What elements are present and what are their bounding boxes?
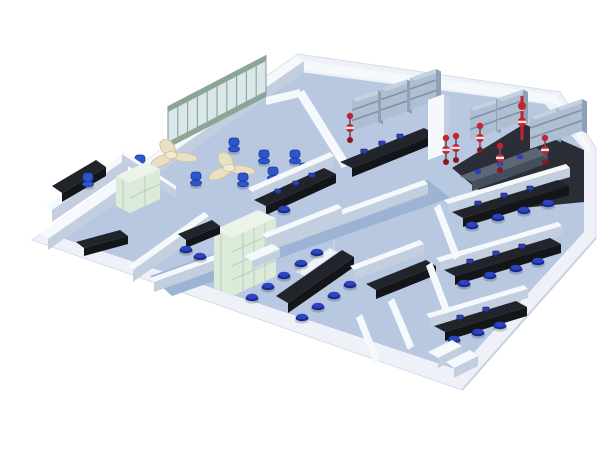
door-pillar bbox=[428, 94, 444, 160]
isometric-lab-scene bbox=[0, 0, 600, 450]
lab-floorplan-render bbox=[0, 0, 600, 450]
bench-equipment bbox=[475, 170, 481, 174]
bench-equipment bbox=[517, 155, 523, 159]
